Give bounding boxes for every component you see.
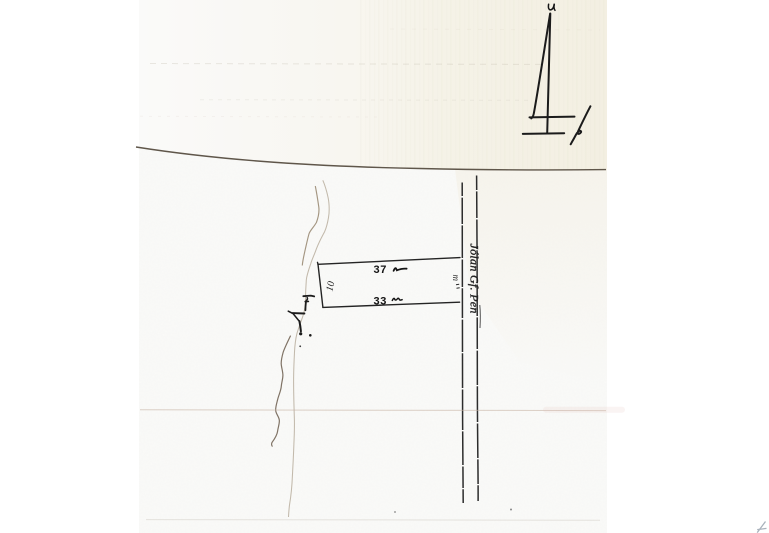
svg-text:33: 33: [374, 296, 387, 308]
svg-text:Jólan Gf. Pen: Jólan Gf. Pen: [468, 244, 482, 314]
svg-text:m: m: [451, 275, 461, 282]
svg-text:37: 37: [374, 264, 387, 276]
